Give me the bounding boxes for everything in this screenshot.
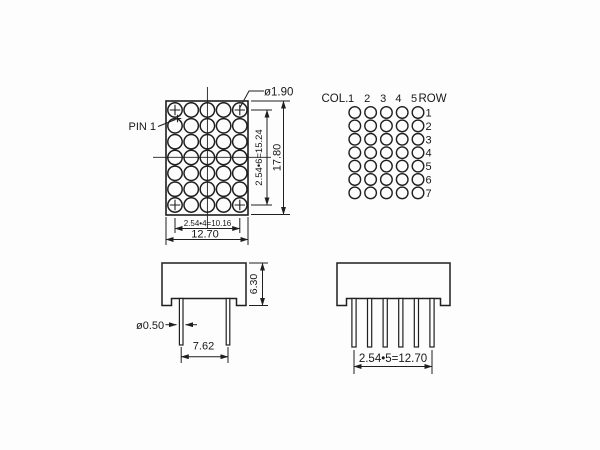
body-height-label: 6.30 bbox=[248, 274, 260, 295]
led-dot bbox=[365, 174, 377, 186]
led-dot bbox=[184, 198, 198, 212]
led-dot bbox=[349, 107, 361, 119]
column-number: 2 bbox=[364, 93, 370, 105]
led-dot bbox=[412, 147, 424, 159]
led-dot bbox=[412, 174, 424, 186]
pin1-label: PIN 1 bbox=[129, 121, 157, 133]
pin-pitch-label: 2.54•5=12.70 bbox=[359, 353, 427, 365]
column-number: 5 bbox=[411, 93, 417, 105]
corner-crosshair-icon bbox=[235, 105, 245, 115]
led-dot bbox=[184, 182, 198, 196]
led-dot bbox=[233, 119, 247, 133]
col-header-label: COL. bbox=[322, 93, 349, 105]
overall-height-label: 17.80 bbox=[272, 144, 284, 172]
bottom-pin-row bbox=[352, 299, 434, 348]
schematic-dot-grid bbox=[349, 107, 424, 199]
bottom-pin bbox=[352, 299, 356, 348]
row-number: 4 bbox=[426, 148, 432, 160]
led-dot bbox=[349, 187, 361, 199]
led-dot bbox=[216, 119, 230, 133]
led-dot bbox=[168, 182, 182, 196]
bottom-pin bbox=[399, 299, 403, 348]
led-dot bbox=[381, 134, 393, 146]
led-dot bbox=[381, 160, 393, 172]
side-body-outline bbox=[162, 263, 246, 306]
led-dot bbox=[412, 134, 424, 146]
column-numbers: 1 2 3 4 5 bbox=[348, 93, 417, 105]
led-dot bbox=[168, 135, 182, 149]
pin-schematic: COL. ROW 1 2 3 4 5 1 2 3 4 5 6 7 bbox=[322, 93, 447, 200]
row-number: 6 bbox=[426, 175, 432, 187]
drawing-svg: PIN 1 ø1.90 2.54•6=15.24 17.80 2.54•4=10… bbox=[0, 0, 600, 450]
row-number: 7 bbox=[426, 188, 432, 200]
row-number: 3 bbox=[426, 134, 432, 146]
led-dot bbox=[216, 198, 230, 212]
led-dot bbox=[412, 187, 424, 199]
vertical-pitch-label: 2.54•6=15.24 bbox=[254, 129, 265, 185]
side-pin-right bbox=[226, 299, 230, 346]
led-dot bbox=[365, 187, 377, 199]
led-dot bbox=[216, 135, 230, 149]
led-dot bbox=[184, 103, 198, 117]
overall-width-label: 12.70 bbox=[191, 229, 219, 241]
row-number: 2 bbox=[426, 121, 432, 133]
corner-crosshair-icon bbox=[170, 105, 180, 115]
led-dot bbox=[349, 160, 361, 172]
bottom-pin bbox=[430, 299, 434, 348]
led-dot bbox=[365, 120, 377, 132]
led-dot bbox=[381, 147, 393, 159]
led-dot bbox=[381, 187, 393, 199]
led-dot bbox=[216, 166, 230, 180]
led-dot bbox=[396, 147, 408, 159]
led-dot bbox=[184, 166, 198, 180]
led-dot bbox=[349, 174, 361, 186]
led-dot bbox=[396, 174, 408, 186]
led-dot bbox=[184, 135, 198, 149]
bottom-pin bbox=[368, 299, 372, 348]
led-dot bbox=[168, 166, 182, 180]
row-number: 1 bbox=[426, 108, 432, 120]
bottom-view: 2.54•5=12.70 bbox=[337, 263, 450, 374]
led-dot bbox=[168, 119, 182, 133]
led-dot bbox=[365, 134, 377, 146]
pin-diameter-label: ø0.50 bbox=[136, 320, 164, 332]
led-dot bbox=[184, 119, 198, 133]
column-number: 3 bbox=[380, 93, 386, 105]
horizontal-pitch-label: 2.54•4=10.16 bbox=[184, 219, 232, 228]
column-number: 1 bbox=[348, 93, 354, 105]
led-matrix-technical-drawing: PIN 1 ø1.90 2.54•6=15.24 17.80 2.54•4=10… bbox=[0, 0, 600, 450]
led-dot bbox=[365, 160, 377, 172]
pin-spacing-label: 7.62 bbox=[193, 341, 214, 353]
corner-crosshair-icon bbox=[170, 200, 180, 210]
led-dot bbox=[396, 134, 408, 146]
side-view: 6.30 ø0.50 7.62 bbox=[136, 263, 268, 363]
column-number: 4 bbox=[395, 93, 401, 105]
led-dot bbox=[381, 174, 393, 186]
led-dot bbox=[412, 107, 424, 119]
led-dot bbox=[233, 182, 247, 196]
led-dot bbox=[412, 120, 424, 132]
led-dot bbox=[233, 166, 247, 180]
row-header-label: ROW bbox=[419, 93, 447, 105]
dot-diameter-label: ø1.90 bbox=[264, 87, 293, 99]
row-number: 5 bbox=[426, 161, 432, 173]
led-dot bbox=[412, 160, 424, 172]
led-dot bbox=[349, 120, 361, 132]
led-dot bbox=[365, 107, 377, 119]
led-dot bbox=[396, 120, 408, 132]
bottom-pin bbox=[383, 299, 387, 348]
led-dot bbox=[216, 103, 230, 117]
bottom-pin bbox=[414, 299, 418, 348]
side-pin-left bbox=[179, 299, 183, 346]
corner-crosshair-icon bbox=[235, 200, 245, 210]
led-dot bbox=[381, 107, 393, 119]
led-dot bbox=[233, 135, 247, 149]
led-dot bbox=[381, 120, 393, 132]
led-dot bbox=[349, 134, 361, 146]
row-numbers: 1 2 3 4 5 6 7 bbox=[426, 108, 432, 200]
led-dot bbox=[216, 182, 230, 196]
front-view: PIN 1 ø1.90 2.54•6=15.24 17.80 2.54•4=10… bbox=[129, 87, 294, 246]
led-dot bbox=[365, 147, 377, 159]
led-dot bbox=[396, 160, 408, 172]
led-dot bbox=[396, 107, 408, 119]
dot-diameter-leader-line bbox=[240, 91, 264, 108]
led-dot bbox=[396, 187, 408, 199]
led-dot bbox=[349, 147, 361, 159]
